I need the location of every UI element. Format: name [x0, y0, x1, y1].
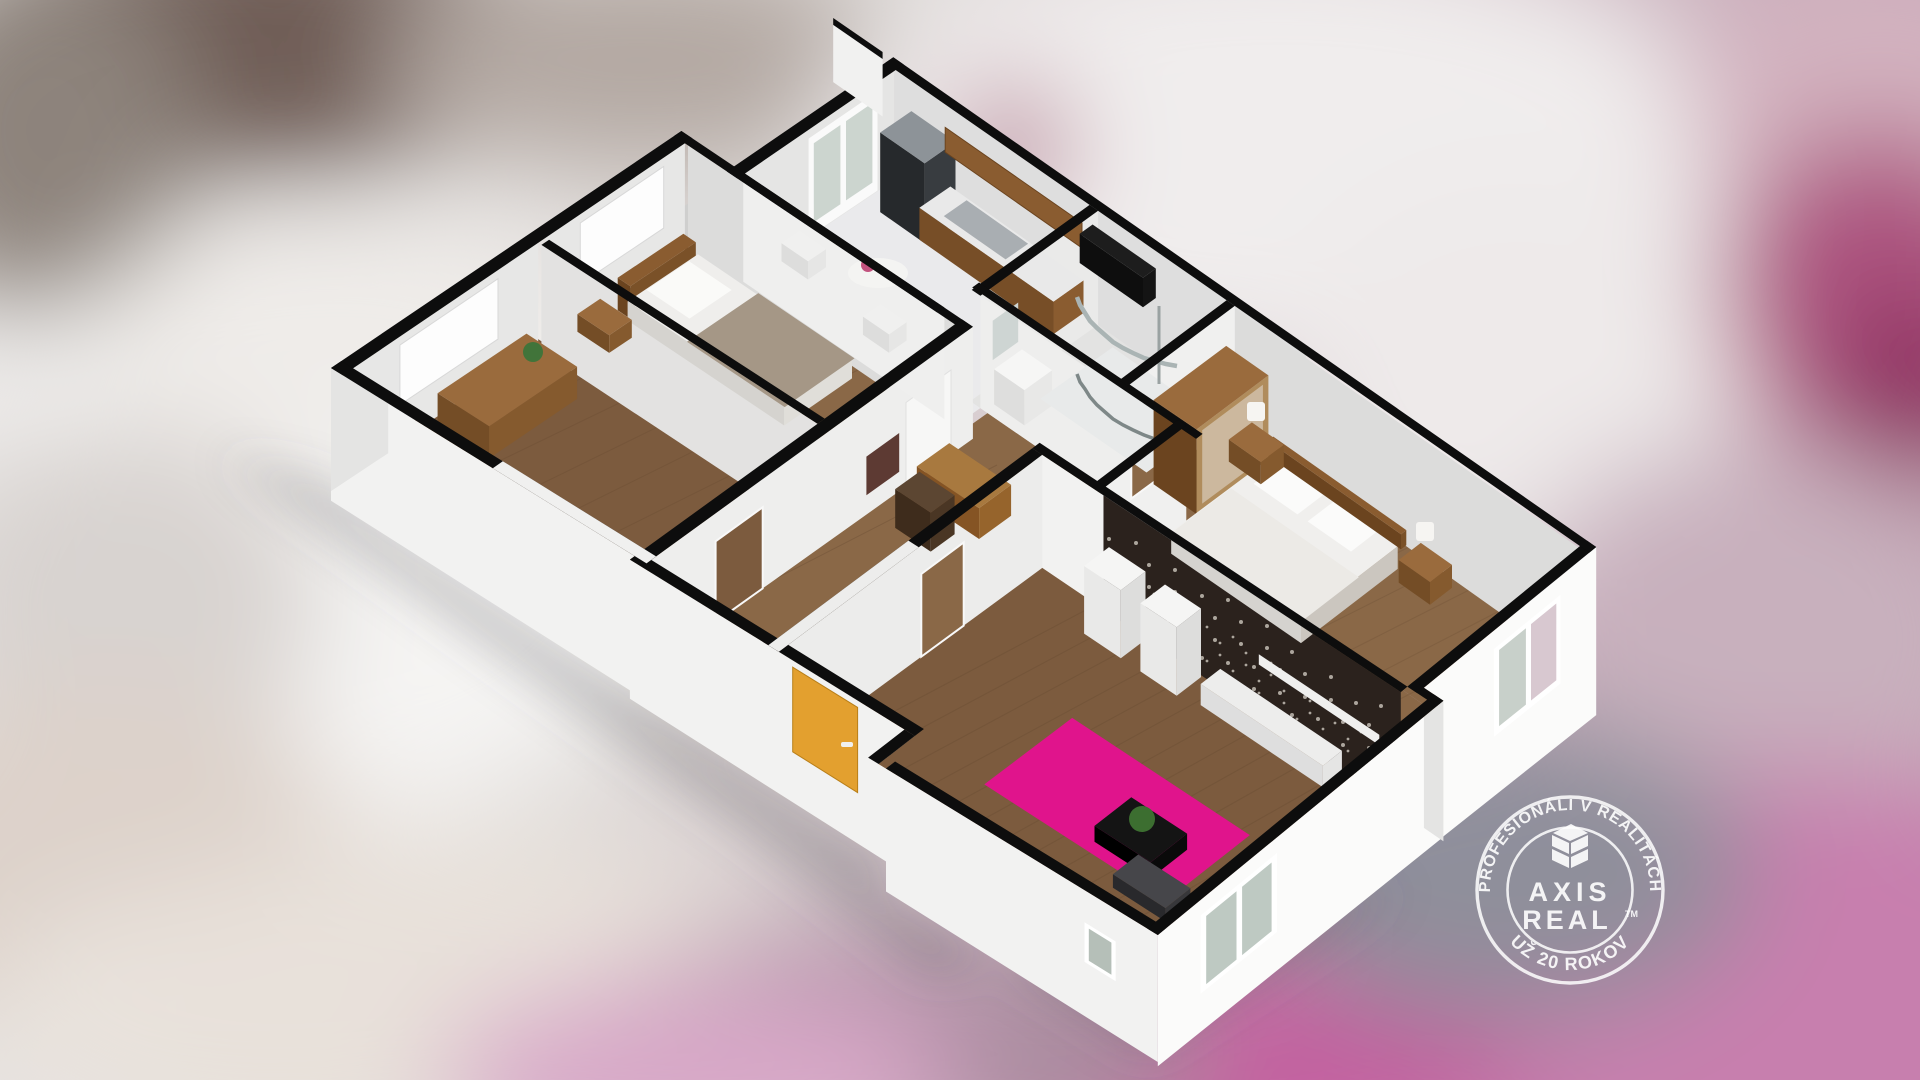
svg-text:AXIS: AXIS: [1528, 877, 1611, 907]
svg-text:TM: TM: [1625, 909, 1638, 919]
svg-text:REAL: REAL: [1522, 905, 1612, 935]
